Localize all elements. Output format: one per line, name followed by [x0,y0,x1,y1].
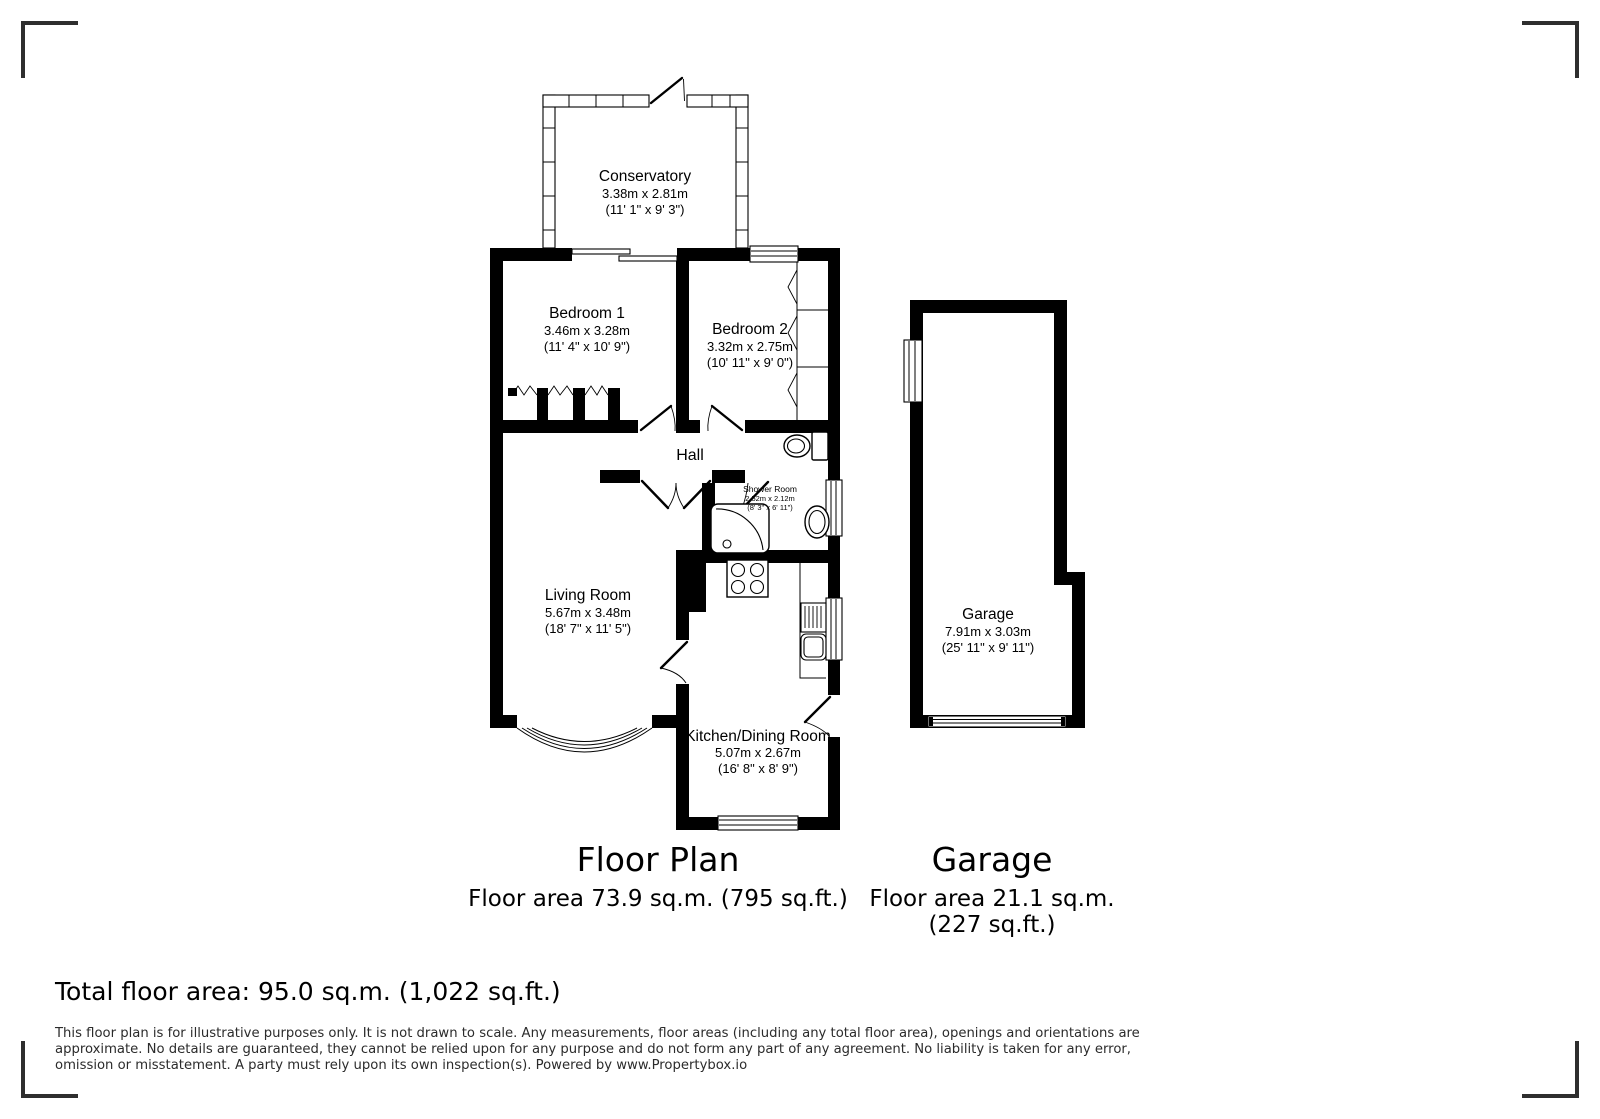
garage-window [904,340,922,402]
kitchen-side-window [826,598,842,660]
shower-room-label: Shower Room 2.52m x 2.12m (8' 3" x 6' 11… [743,484,797,512]
svg-text:5.67m x 3.48m: 5.67m x 3.48m [545,605,631,620]
floor-plan-page: Conservatory 3.38m x 2.81m (11' 1" x 9' … [0,0,1600,1119]
kitchen-label: Kitchen/Dining Room 5.07m x 2.67m (16' 8… [685,728,831,776]
disclaimer: This floor plan is for illustrative purp… [54,1026,1140,1073]
svg-text:Garage: Garage [932,840,1053,879]
bedroom2-window [750,246,798,262]
toilet-icon [784,432,828,460]
basin-icon [805,506,829,538]
svg-text:Kitchen/Dining Room: Kitchen/Dining Room [685,728,831,745]
bedroom2-wardrobes [788,262,828,420]
kitchen-rear-window [718,816,798,830]
living-room-label: Living Room 5.67m x 3.48m (18' 7" x 11' … [545,587,631,636]
svg-text:approximate. No details are gu: approximate. No details are guaranteed, … [55,1042,1131,1057]
svg-text:Bedroom 2: Bedroom 2 [712,321,788,338]
svg-text:(11' 1" x 9' 3"): (11' 1" x 9' 3") [606,202,685,217]
svg-text:Floor area 21.1 sq.m.: Floor area 21.1 sq.m. [869,886,1114,912]
conservatory-door [651,78,685,103]
crop-mark-bottom-right-icon [1522,1041,1577,1096]
svg-text:2.52m x 2.12m: 2.52m x 2.12m [745,494,795,503]
sliding-door [572,249,677,261]
svg-text:Bedroom 1: Bedroom 1 [549,305,625,322]
kitchen-counter [800,563,826,678]
garage-caption: Garage Floor area 21.1 sq.m. (227 sq.ft.… [869,840,1114,938]
garage-walls [910,300,1085,728]
svg-text:Floor Plan: Floor Plan [577,840,740,879]
svg-text:(8' 3" x 6' 11"): (8' 3" x 6' 11") [747,503,793,512]
living-room-double-door [642,481,710,508]
hall-label: Hall [676,447,704,464]
svg-text:Conservatory: Conservatory [599,168,691,185]
svg-text:(10' 11" x 9' 0"): (10' 11" x 9' 0") [707,355,793,370]
svg-text:Total floor area: 95.0 sq.m. (: Total floor area: 95.0 sq.m. (1,022 sq.f… [54,977,561,1006]
garage-label: Garage 7.91m x 3.03m (25' 11" x 9' 11") [942,606,1034,655]
svg-text:omission or misstatement. A pa: omission or misstatement. A party must r… [55,1058,747,1073]
svg-text:Hall: Hall [676,447,704,464]
svg-text:(227 sq.ft.): (227 sq.ft.) [928,912,1055,938]
crop-mark-top-right-icon [1522,23,1577,78]
bedroom2-door [708,406,742,431]
floor-plan-canvas: Conservatory 3.38m x 2.81m (11' 1" x 9' … [0,0,1600,1119]
svg-text:This floor plan is for illustr: This floor plan is for illustrative purp… [54,1026,1140,1041]
svg-text:(16' 8" x 8' 9"): (16' 8" x 8' 9") [718,761,798,776]
kitchen-door [661,642,687,683]
hob-icon [727,560,768,597]
svg-text:5.07m x 2.67m: 5.07m x 2.67m [715,745,801,760]
total-floor-area: Total floor area: 95.0 sq.m. (1,022 sq.f… [54,977,561,1006]
svg-text:(18' 7" x 11' 5"): (18' 7" x 11' 5") [545,621,631,636]
bedroom1-label: Bedroom 1 3.46m x 3.28m (11' 4" x 10' 9"… [544,305,630,354]
crop-mark-top-left-icon [23,23,78,78]
bedroom2-label: Bedroom 2 3.32m x 2.75m (10' 11" x 9' 0"… [707,321,793,370]
conservatory-label: Conservatory 3.38m x 2.81m (11' 1" x 9' … [599,168,691,217]
svg-text:3.32m x 2.75m: 3.32m x 2.75m [707,339,793,354]
svg-text:Floor area 73.9 sq.m. (795 sq.: Floor area 73.9 sq.m. (795 sq.ft.) [468,886,848,912]
svg-text:7.91m x 3.03m: 7.91m x 3.03m [945,624,1031,639]
svg-text:(11' 4" x 10' 9"): (11' 4" x 10' 9") [544,339,630,354]
svg-text:Shower Room: Shower Room [743,484,797,494]
svg-text:Garage: Garage [962,606,1014,623]
svg-text:3.46m x 3.28m: 3.46m x 3.28m [544,323,630,338]
floorplan-caption: Floor Plan Floor area 73.9 sq.m. (795 sq… [468,840,848,912]
svg-text:(25' 11" x 9' 11"): (25' 11" x 9' 11") [942,640,1034,655]
garage-door [928,716,1066,727]
svg-text:3.38m x 2.81m: 3.38m x 2.81m [602,186,688,201]
bedroom1-door [641,406,675,431]
bay-window [517,728,652,752]
svg-text:Living Room: Living Room [545,587,631,604]
